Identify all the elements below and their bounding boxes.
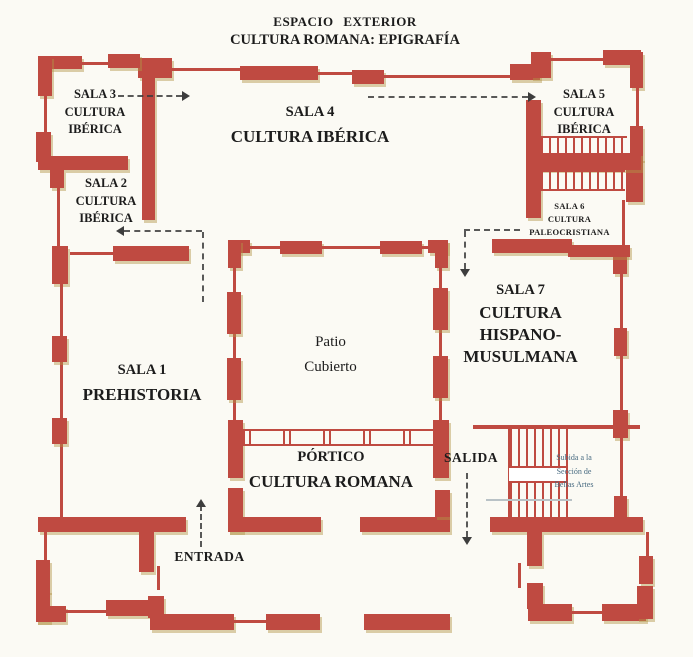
label-sala-7: SALA 7 CULTURA HISPANO- MUSULMANA [428, 282, 613, 368]
portico-colonnade [243, 429, 433, 446]
label-sala-3: SALA 3 CULTURA IBÉRICA [40, 86, 150, 139]
note-line: Subida a la [540, 451, 608, 465]
wall-segment [435, 490, 450, 517]
route-line-to-sala7-v [464, 231, 466, 269]
wall-segment [64, 610, 108, 613]
title-line-1: ESPACIO EXTERIOR [175, 14, 515, 30]
wall-segment [572, 611, 604, 614]
room-name: SALA 6 [512, 200, 627, 213]
wall-segment [630, 52, 643, 88]
wall-segment [568, 245, 630, 257]
room-culture: CULTURA IBÉRICA [190, 126, 430, 148]
wall-segment [250, 246, 280, 249]
arrow-up-icon [196, 499, 206, 507]
arrow-left-icon [116, 226, 124, 236]
wall-segment [36, 560, 50, 592]
room-culture: PREHISTORIA [52, 384, 232, 406]
room-culture: CULTURA [50, 193, 162, 211]
wall-segment [82, 62, 110, 65]
room-culture: IBÉRICA [528, 121, 640, 139]
room-name: Cubierto [268, 355, 393, 380]
label-sala-4: SALA 4 CULTURA IBÉRICA [190, 104, 430, 148]
wall-segment [620, 356, 623, 412]
room-name: SALA 2 [50, 175, 162, 193]
room-culture: CULTURA ROMANA [222, 471, 440, 493]
wall-segment [38, 156, 128, 170]
wall-segment [531, 52, 551, 78]
wall-segment [172, 68, 240, 71]
room-culture: CULTURA [512, 213, 627, 226]
room-culture: CULTURA [428, 302, 613, 324]
route-line-to-sala5 [368, 96, 528, 98]
staircase-outline [486, 499, 572, 501]
room-name: PÓRTICO [222, 449, 440, 466]
wall-segment [614, 328, 627, 356]
room-name: SALA 1 [52, 362, 232, 379]
route-line-to-sala2-v [202, 232, 204, 302]
label-portico: PÓRTICO CULTURA ROMANA [222, 449, 440, 493]
wall-segment [490, 517, 643, 532]
wall-segment [38, 517, 186, 532]
wall-segment [227, 292, 241, 334]
room-name: SALA 4 [190, 104, 430, 121]
label-salida: SALIDA [438, 450, 504, 466]
wall-segment [228, 240, 241, 268]
wall-segment [318, 72, 352, 75]
label-sala-2: SALA 2 CULTURA IBÉRICA [50, 175, 162, 228]
wall-segment [150, 614, 234, 630]
label-sala-1: SALA 1 PREHISTORIA [52, 362, 232, 406]
room-culture: IBÉRICA [50, 210, 162, 228]
wall-segment [613, 410, 628, 438]
label-entrada: ENTRADA [162, 549, 257, 565]
room-culture: CULTURA [40, 104, 150, 122]
wall-segment [614, 496, 627, 518]
wall-segment [228, 517, 321, 532]
wall-segment [551, 58, 603, 61]
wall-segment [639, 556, 653, 584]
wall-segment [360, 517, 450, 532]
wall-segment [240, 66, 318, 80]
room-name: SALA 5 [528, 86, 640, 104]
title-line-2: CULTURA ROMANA: EPIGRAFÍA [175, 32, 515, 49]
room-culture: IBÉRICA [40, 121, 150, 139]
wall-segment [70, 252, 114, 255]
wall-segment [52, 246, 68, 284]
wall-segment [44, 532, 47, 562]
room-name: SALA 7 [428, 282, 613, 299]
wall-segment [52, 336, 67, 362]
wall-segment [138, 58, 172, 78]
arrow-down-icon [460, 269, 470, 277]
wall-segment [139, 532, 154, 572]
room-culture: HISPANO- [428, 324, 613, 346]
wall-segment [492, 239, 572, 253]
wall-segment [364, 614, 450, 630]
staircase-lower-flight [541, 170, 625, 191]
room-culture: PALEOCRISTIANA [512, 226, 627, 239]
wall-segment [435, 240, 448, 268]
exterior-space-title: ESPACIO EXTERIOR CULTURA ROMANA: EPIGRAF… [175, 14, 515, 49]
wall-segment [620, 438, 623, 498]
label-sala-6: SALA 6 CULTURA PALEOCRISTIANA [512, 200, 627, 240]
route-line-entrada [200, 505, 202, 547]
room-culture: MUSULMANA [428, 346, 613, 368]
wall-segment [106, 600, 150, 616]
note-line: Bellas Artes [540, 478, 608, 492]
room-name: Patio [268, 330, 393, 355]
wall-segment [113, 246, 189, 261]
wall-segment [234, 620, 266, 623]
staircase-landing-wall [541, 153, 641, 170]
wall-segment [637, 586, 653, 619]
wall-segment [528, 604, 572, 621]
wall-segment [108, 54, 140, 68]
route-line-salida [466, 473, 468, 537]
room-culture: CULTURA [528, 104, 640, 122]
entrance-door-mark [157, 566, 160, 590]
wall-segment [280, 241, 322, 254]
note-line: Sección de [540, 465, 608, 479]
label-sala-5: SALA 5 CULTURA IBÉRICA [528, 86, 640, 139]
wall-segment [527, 532, 542, 566]
wall-segment [52, 418, 67, 444]
arrow-down-icon [462, 537, 472, 545]
label-patio-cubierto: Patio Cubierto [268, 330, 393, 380]
museum-floor-plan: ESPACIO EXTERIOR CULTURA ROMANA: EPIGRAF… [0, 0, 693, 657]
label-stairs-to-bellas-artes: Subida a la Sección de Bellas Artes [540, 451, 608, 492]
wall-segment [352, 70, 384, 84]
route-line-to-sala2 [124, 230, 202, 232]
wall-segment [620, 272, 623, 330]
exit-door-mark [518, 563, 521, 588]
arrow-right-icon [182, 91, 190, 101]
room-name: SALA 3 [40, 86, 150, 104]
wall-segment [384, 75, 510, 78]
wall-segment [322, 246, 380, 249]
wall-segment [266, 614, 320, 630]
wall-segment [36, 606, 66, 622]
wall-segment [380, 241, 422, 254]
